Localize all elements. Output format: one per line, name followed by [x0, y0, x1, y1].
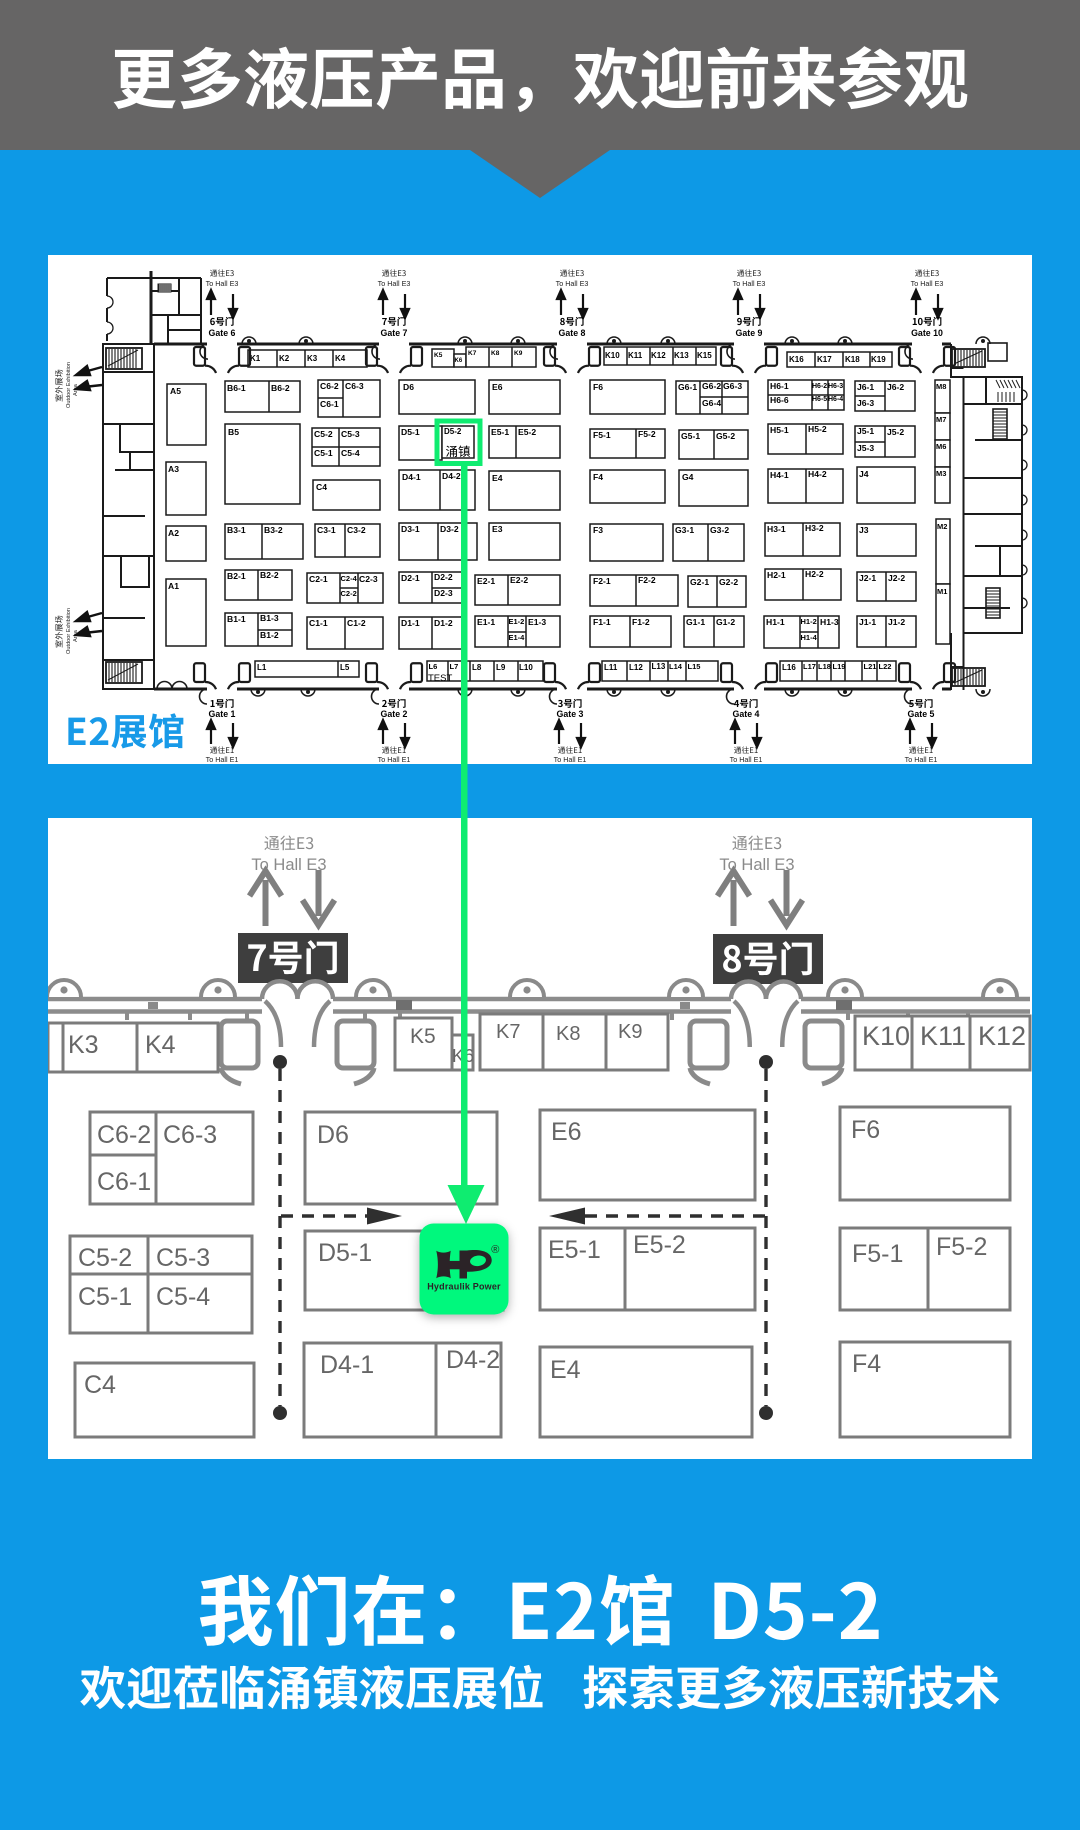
svg-text:Hydraulik Power: Hydraulik Power — [427, 1281, 501, 1291]
svg-text:®: ® — [491, 1244, 499, 1256]
